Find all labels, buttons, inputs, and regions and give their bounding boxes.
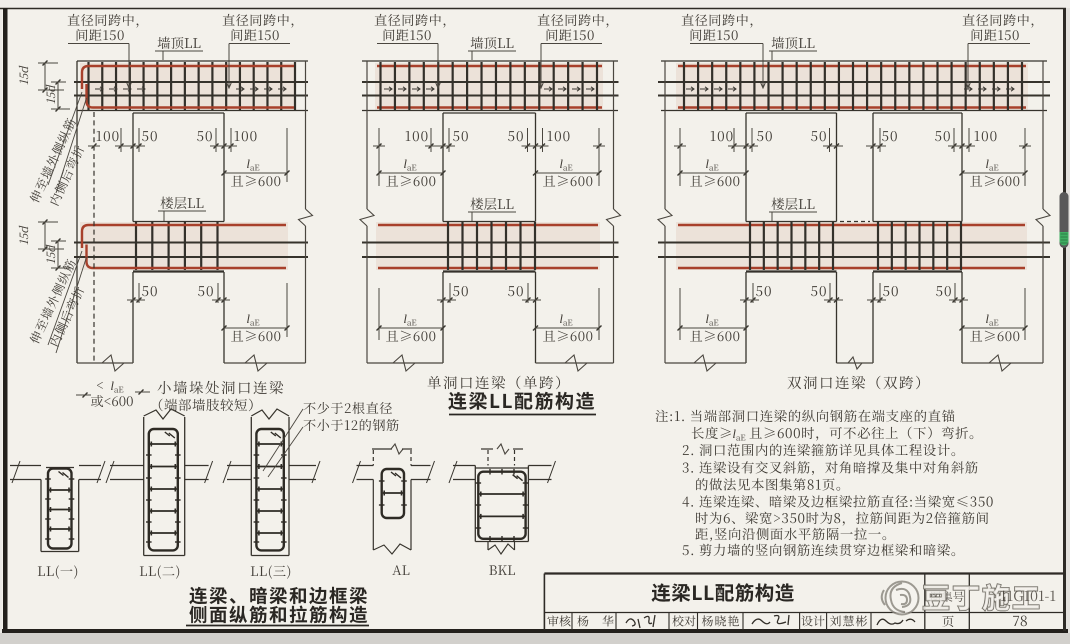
svg-text:50: 50 [141, 280, 158, 300]
svg-text:50: 50 [197, 280, 214, 300]
svg-text:刘慧彬: 刘慧彬 [829, 613, 868, 630]
svg-text:杨: 杨 [577, 613, 589, 630]
svg-text:侧面纵筋和拉筋构造: 侧面纵筋和拉筋构造 [189, 602, 369, 628]
svg-text:审核: 审核 [547, 613, 572, 630]
svg-text:100: 100 [547, 125, 571, 145]
svg-text:连梁LL配筋构造: 连梁LL配筋构造 [651, 577, 795, 606]
svg-text:50: 50 [881, 125, 898, 145]
svg-text:间距150: 间距150 [970, 25, 1020, 44]
svg-text:50: 50 [452, 280, 469, 300]
svg-text:50: 50 [810, 125, 827, 145]
svg-text:杨晓艳: 杨晓艳 [701, 613, 740, 630]
svg-text:100: 100 [974, 125, 998, 145]
svg-text:LL(一): LL(一) [37, 561, 79, 580]
svg-text:且≥600: 且≥600 [970, 326, 1021, 345]
svg-text:15d: 15d [43, 244, 59, 265]
svg-text:11G101-1: 11G101-1 [1000, 586, 1056, 606]
svg-text:且≥600: 且≥600 [386, 171, 437, 190]
svg-text:50: 50 [452, 125, 469, 145]
svg-text:50: 50 [507, 280, 524, 300]
svg-text:间距150: 间距150 [75, 25, 125, 44]
svg-text:50: 50 [756, 125, 773, 145]
svg-text:15d: 15d [43, 84, 59, 105]
svg-text:墙顶LL: 墙顶LL [157, 32, 201, 52]
svg-text:间距150: 间距150 [689, 25, 739, 44]
svg-text:且≥600: 且≥600 [543, 171, 594, 190]
svg-text:间距150: 间距150 [230, 25, 280, 44]
svg-text:间距150: 间距150 [382, 25, 432, 44]
svg-text:LL(三): LL(三) [250, 561, 292, 580]
svg-text:50: 50 [882, 280, 899, 300]
svg-text:间距150: 间距150 [545, 25, 595, 44]
svg-text:50: 50 [810, 280, 827, 300]
svg-text:且≥600: 且≥600 [690, 171, 741, 190]
svg-text:LL(二): LL(二) [139, 561, 181, 580]
svg-text:100: 100 [234, 125, 258, 145]
svg-text:楼层LL: 楼层LL [771, 193, 815, 213]
svg-text:50: 50 [935, 280, 952, 300]
svg-text:双洞口连梁（双跨）: 双洞口连梁（双跨） [787, 372, 931, 393]
svg-text:且≥600: 且≥600 [386, 326, 437, 345]
svg-text:连梁LL配筋构造: 连梁LL配筋构造 [448, 387, 596, 414]
svg-text:墙顶LL: 墙顶LL [470, 32, 514, 52]
svg-text:且≥600: 且≥600 [970, 171, 1021, 190]
svg-text:100: 100 [710, 125, 734, 145]
svg-text:5. 剪力墙的竖向钢筋连续贯穿边框梁和暗梁。: 5. 剪力墙的竖向钢筋连续贯穿边框梁和暗梁。 [682, 540, 965, 559]
svg-text:（端部墙肢较短）: （端部墙肢较短） [150, 394, 262, 414]
svg-text:15d: 15d [16, 65, 32, 86]
svg-text:且≥600: 且≥600 [543, 326, 594, 345]
svg-text:BKL: BKL [489, 560, 516, 579]
svg-text:50: 50 [507, 125, 524, 145]
svg-text:华: 华 [602, 613, 614, 630]
svg-text:50: 50 [141, 125, 158, 145]
svg-text:50: 50 [196, 125, 213, 145]
svg-text:墙顶LL: 墙顶LL [771, 32, 815, 52]
svg-text:100: 100 [96, 125, 120, 145]
svg-text:楼层LL: 楼层LL [470, 193, 514, 213]
svg-text:50: 50 [755, 280, 772, 300]
svg-text:且≥600: 且≥600 [231, 326, 282, 345]
svg-text:校对: 校对 [672, 613, 696, 630]
svg-text:不小于12的钢筋: 不小于12的钢筋 [303, 415, 400, 434]
svg-text:100: 100 [405, 125, 429, 145]
svg-text:设计: 设计 [801, 613, 825, 630]
svg-text:15d: 15d [16, 225, 32, 246]
svg-text:且≥600: 且≥600 [690, 326, 741, 345]
svg-text:50: 50 [934, 125, 951, 145]
svg-text:楼层LL: 楼层LL [160, 192, 204, 212]
svg-text:AL: AL [392, 560, 410, 579]
svg-text:或<600: 或<600 [91, 391, 134, 410]
svg-text:且≥600: 且≥600 [231, 171, 282, 190]
svg-text:2. 洞口范围内的连梁箍筋详见具体工程设计。: 2. 洞口范围内的连梁箍筋详见具体工程设计。 [682, 440, 965, 459]
